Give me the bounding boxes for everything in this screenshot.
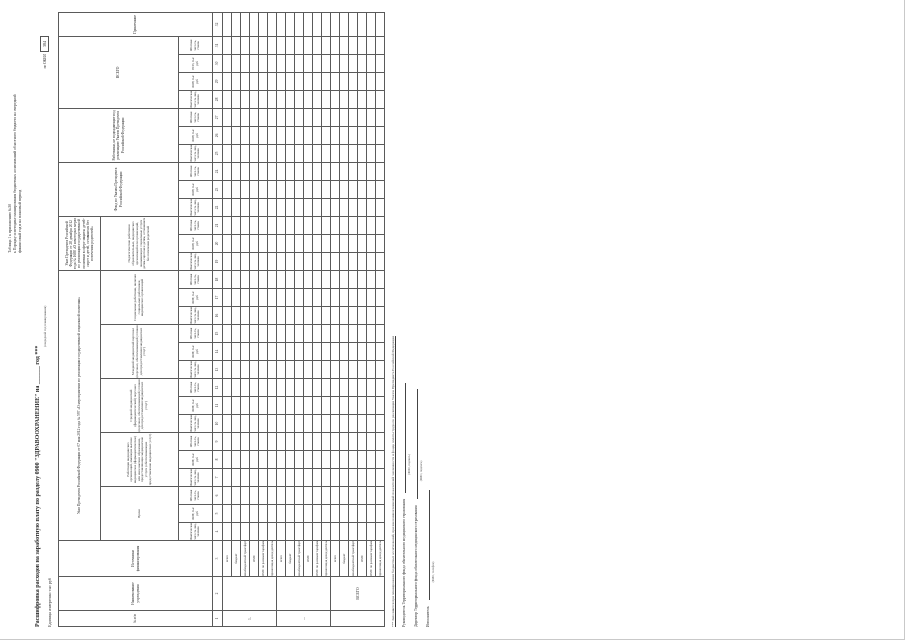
data-cell bbox=[295, 180, 304, 198]
data-cell bbox=[232, 289, 241, 307]
data-cell bbox=[268, 487, 277, 505]
data-cell bbox=[295, 397, 304, 415]
subcol-payroll-fund: ФОТ, тыс руб bbox=[179, 234, 213, 252]
data-cell bbox=[376, 379, 385, 397]
data-cell bbox=[313, 234, 322, 252]
data-cell bbox=[313, 126, 322, 144]
data-cell bbox=[241, 270, 250, 288]
data-cell bbox=[367, 36, 376, 54]
column-number: 25 bbox=[213, 144, 223, 162]
data-cell bbox=[232, 270, 241, 288]
data-cell bbox=[376, 487, 385, 505]
data-cell bbox=[358, 90, 367, 108]
table-row: ОМС по разовым тарифам bbox=[313, 12, 322, 626]
table-row: межбюджетный трансферт ТФОМС из обл bbox=[241, 12, 250, 626]
data-cell bbox=[268, 433, 277, 451]
data-cell bbox=[277, 126, 286, 144]
data-cell bbox=[322, 234, 331, 252]
data-cell bbox=[241, 343, 250, 361]
data-cell bbox=[331, 307, 340, 325]
data-cell bbox=[268, 325, 277, 343]
subcol-payroll-fund: ФОТ, тыс руб bbox=[179, 72, 213, 90]
data-cell bbox=[340, 144, 349, 162]
data-cell bbox=[259, 126, 268, 144]
data-cell bbox=[277, 108, 286, 126]
table-row: приносящая доход деятельность bbox=[268, 12, 277, 626]
data-cell bbox=[232, 54, 241, 72]
source-cell: бюджет bbox=[232, 541, 241, 577]
data-cell bbox=[313, 361, 322, 379]
data-cell bbox=[322, 469, 331, 487]
data-cell bbox=[241, 234, 250, 252]
data-cell bbox=[232, 216, 241, 234]
data-cell bbox=[241, 36, 250, 54]
data-cell bbox=[268, 180, 277, 198]
data-cell bbox=[349, 90, 358, 108]
data-cell bbox=[268, 216, 277, 234]
data-cell bbox=[223, 180, 232, 198]
data-cell bbox=[250, 12, 259, 36]
data-cell bbox=[313, 180, 322, 198]
data-cell bbox=[223, 12, 232, 36]
column-number: 28 bbox=[213, 90, 223, 108]
data-cell bbox=[295, 252, 304, 270]
data-cell bbox=[349, 289, 358, 307]
data-cell bbox=[241, 361, 250, 379]
data-cell bbox=[367, 198, 376, 216]
data-cell bbox=[331, 90, 340, 108]
data-cell bbox=[268, 397, 277, 415]
data-cell bbox=[367, 469, 376, 487]
subcol-actual-headcount: Фактическая числ-ть лиц, человек bbox=[179, 307, 213, 325]
data-cell bbox=[250, 162, 259, 180]
data-cell bbox=[232, 487, 241, 505]
data-cell bbox=[250, 90, 259, 108]
data-cell bbox=[322, 361, 331, 379]
data-cell bbox=[322, 289, 331, 307]
data-cell bbox=[322, 36, 331, 54]
data-cell bbox=[268, 523, 277, 541]
data-cell bbox=[268, 144, 277, 162]
data-cell bbox=[340, 361, 349, 379]
data-cell bbox=[223, 505, 232, 523]
source-cell: межбюджетный трансферт ТФОМС из обл bbox=[349, 541, 358, 577]
data-cell bbox=[322, 343, 331, 361]
data-cell bbox=[268, 451, 277, 469]
row-num-cell bbox=[331, 611, 385, 627]
data-cell bbox=[232, 162, 241, 180]
column-number: 32 bbox=[213, 12, 223, 36]
data-cell bbox=[286, 180, 295, 198]
data-cell bbox=[259, 343, 268, 361]
source-cell: всего bbox=[277, 541, 286, 577]
data-cell bbox=[295, 144, 304, 162]
subcol-actual-headcount: Фактическая числ-ть лиц, человек bbox=[179, 469, 213, 487]
data-cell bbox=[367, 54, 376, 72]
data-cell bbox=[277, 180, 286, 198]
data-cell bbox=[295, 198, 304, 216]
data-cell bbox=[232, 469, 241, 487]
data-cell bbox=[358, 144, 367, 162]
signature-label: Исполнитель bbox=[426, 606, 430, 627]
table-row: ОМС по разовым тарифам bbox=[259, 12, 268, 626]
data-cell bbox=[277, 487, 286, 505]
data-cell bbox=[277, 252, 286, 270]
data-cell bbox=[295, 451, 304, 469]
data-cell bbox=[349, 162, 358, 180]
category-header: Средний медицинский (фармацевтический) п… bbox=[101, 379, 179, 433]
data-cell bbox=[241, 12, 250, 36]
data-cell bbox=[367, 307, 376, 325]
data-cell bbox=[358, 433, 367, 451]
data-cell bbox=[340, 108, 349, 126]
data-cell bbox=[322, 415, 331, 433]
data-cell bbox=[241, 433, 250, 451]
data-cell bbox=[322, 72, 331, 90]
data-cell bbox=[340, 505, 349, 523]
column-number: 10 bbox=[213, 415, 223, 433]
data-cell bbox=[259, 433, 268, 451]
data-cell bbox=[277, 343, 286, 361]
data-cell bbox=[304, 523, 313, 541]
data-cell bbox=[277, 144, 286, 162]
data-cell bbox=[295, 415, 304, 433]
data-cell bbox=[367, 343, 376, 361]
data-cell bbox=[259, 451, 268, 469]
data-cell bbox=[241, 144, 250, 162]
column-number: 31 bbox=[213, 36, 223, 54]
data-cell bbox=[259, 108, 268, 126]
title-year-note: (очередной год планирования) bbox=[43, 306, 47, 347]
data-cell bbox=[313, 90, 322, 108]
data-cell bbox=[304, 469, 313, 487]
data-cell bbox=[340, 162, 349, 180]
data-cell bbox=[241, 252, 250, 270]
data-cell bbox=[241, 289, 250, 307]
data-cell bbox=[340, 487, 349, 505]
data-cell bbox=[376, 54, 385, 72]
data-cell bbox=[232, 361, 241, 379]
data-cell bbox=[376, 325, 385, 343]
data-cell bbox=[358, 325, 367, 343]
data-cell bbox=[223, 415, 232, 433]
column-number: 8 bbox=[213, 451, 223, 469]
data-cell bbox=[250, 397, 259, 415]
data-cell bbox=[286, 12, 295, 36]
data-cell bbox=[259, 270, 268, 288]
data-cell bbox=[331, 12, 340, 36]
data-cell bbox=[340, 234, 349, 252]
source-cell: всего bbox=[331, 541, 340, 577]
data-cell bbox=[376, 144, 385, 162]
data-cell bbox=[232, 433, 241, 451]
data-cell bbox=[268, 162, 277, 180]
footnote: *** Заполняется при планировании бюджетн… bbox=[391, 11, 395, 627]
data-cell bbox=[304, 487, 313, 505]
data-cell bbox=[340, 397, 349, 415]
data-cell bbox=[367, 180, 376, 198]
data-cell bbox=[349, 12, 358, 36]
data-cell bbox=[268, 289, 277, 307]
source-cell: приносящая доход деятельность bbox=[376, 541, 385, 577]
subcol-actual-headcount: Фактическая числ-ть лиц, человек bbox=[179, 523, 213, 541]
page-title: Расшифровка расходов на заработную плату… bbox=[35, 346, 41, 627]
data-cell bbox=[232, 108, 241, 126]
data-cell bbox=[340, 36, 349, 54]
data-cell bbox=[367, 379, 376, 397]
data-cell bbox=[376, 433, 385, 451]
data-cell bbox=[349, 469, 358, 487]
data-cell bbox=[331, 270, 340, 288]
data-cell bbox=[286, 198, 295, 216]
data-cell bbox=[295, 307, 304, 325]
subcol-actual-headcount: Фактическая числ-ть лиц, человек bbox=[179, 252, 213, 270]
data-cell bbox=[241, 216, 250, 234]
data-cell bbox=[313, 12, 322, 36]
data-cell bbox=[367, 126, 376, 144]
column-number: 15 bbox=[213, 325, 223, 343]
data-cell bbox=[232, 252, 241, 270]
data-cell bbox=[232, 451, 241, 469]
data-cell bbox=[376, 289, 385, 307]
data-cell bbox=[322, 162, 331, 180]
data-cell bbox=[376, 198, 385, 216]
data-cell bbox=[367, 487, 376, 505]
table-row: ОМС bbox=[304, 12, 313, 626]
data-cell bbox=[277, 12, 286, 36]
appendix-reference: Таблица 1 к приложению №30 к Порядку и м… bbox=[8, 38, 23, 253]
data-cell bbox=[340, 307, 349, 325]
data-cell bbox=[358, 307, 367, 325]
data-cell bbox=[232, 415, 241, 433]
data-cell bbox=[304, 126, 313, 144]
data-cell bbox=[313, 523, 322, 541]
source-cell: бюджет bbox=[340, 541, 349, 577]
data-cell bbox=[367, 12, 376, 36]
data-cell bbox=[358, 36, 367, 54]
data-cell bbox=[241, 198, 250, 216]
data-cell bbox=[349, 415, 358, 433]
group-header-total: ВСЕГО bbox=[59, 36, 179, 108]
data-cell bbox=[304, 54, 313, 72]
data-cell bbox=[277, 234, 286, 252]
col-header-note: Примечание bbox=[59, 12, 213, 36]
subcol-staff-positions: Штатная числ-ть, ставок bbox=[179, 162, 213, 180]
data-cell bbox=[286, 307, 295, 325]
data-cell bbox=[349, 343, 358, 361]
signature-blank: (ФИО, телефон) bbox=[426, 490, 430, 600]
data-cell bbox=[277, 451, 286, 469]
data-cell bbox=[340, 415, 349, 433]
data-cell bbox=[340, 126, 349, 144]
data-cell bbox=[232, 144, 241, 162]
data-cell bbox=[376, 36, 385, 54]
data-cell bbox=[295, 162, 304, 180]
data-cell bbox=[250, 36, 259, 54]
data-cell bbox=[331, 144, 340, 162]
data-cell bbox=[304, 307, 313, 325]
data-cell bbox=[268, 379, 277, 397]
data-cell bbox=[232, 325, 241, 343]
institution-name-cell bbox=[223, 577, 277, 611]
data-cell bbox=[340, 379, 349, 397]
data-cell bbox=[313, 72, 322, 90]
data-cell bbox=[322, 216, 331, 234]
column-number: 16 bbox=[213, 307, 223, 325]
data-cell bbox=[232, 505, 241, 523]
data-cell bbox=[331, 252, 340, 270]
subcol-staff-positions: Штатная числ-ть, ставок bbox=[179, 487, 213, 505]
data-cell bbox=[340, 451, 349, 469]
data-cell bbox=[304, 198, 313, 216]
source-cell: ОМС по разовым тарифам bbox=[313, 541, 322, 577]
data-cell bbox=[340, 289, 349, 307]
data-cell bbox=[286, 108, 295, 126]
data-cell bbox=[250, 469, 259, 487]
signature-blank: (ФИО, подпись) bbox=[414, 389, 418, 499]
data-cell bbox=[340, 270, 349, 288]
subcol-actual-headcount: Фактическая числ-ть лиц, человек bbox=[179, 361, 213, 379]
data-cell bbox=[259, 505, 268, 523]
data-cell bbox=[286, 361, 295, 379]
data-cell bbox=[322, 451, 331, 469]
column-number: 26 bbox=[213, 126, 223, 144]
data-cell bbox=[295, 108, 304, 126]
data-cell bbox=[223, 487, 232, 505]
data-cell bbox=[322, 198, 331, 216]
column-number: 12 bbox=[213, 379, 223, 397]
data-cell bbox=[331, 451, 340, 469]
data-cell bbox=[304, 162, 313, 180]
data-cell bbox=[232, 126, 241, 144]
data-cell bbox=[250, 72, 259, 90]
data-cell bbox=[304, 343, 313, 361]
data-cell bbox=[250, 126, 259, 144]
data-cell bbox=[223, 108, 232, 126]
data-cell bbox=[322, 180, 331, 198]
column-number: 11 bbox=[213, 397, 223, 415]
data-cell bbox=[223, 234, 232, 252]
data-cell bbox=[367, 361, 376, 379]
data-cell bbox=[331, 180, 340, 198]
data-cell bbox=[295, 36, 304, 54]
data-cell bbox=[376, 270, 385, 288]
data-cell bbox=[295, 379, 304, 397]
data-cell bbox=[286, 433, 295, 451]
data-cell bbox=[376, 505, 385, 523]
data-cell bbox=[331, 216, 340, 234]
data-cell bbox=[331, 234, 340, 252]
data-cell bbox=[376, 108, 385, 126]
data-cell bbox=[358, 72, 367, 90]
data-cell bbox=[304, 144, 313, 162]
data-cell bbox=[286, 325, 295, 343]
data-cell bbox=[268, 72, 277, 90]
data-cell bbox=[268, 343, 277, 361]
subcol-staff-positions: Штатная числ-ть, ставок bbox=[179, 270, 213, 288]
data-cell bbox=[295, 487, 304, 505]
subcol-staff-positions: Штатная числ-ть, ставок bbox=[179, 36, 213, 54]
data-cell bbox=[241, 523, 250, 541]
data-cell bbox=[313, 289, 322, 307]
subcol-staff-positions: Штатная числ-ть, ставок bbox=[179, 433, 213, 451]
document-page: Таблица 1 к приложению №30 к Порядку и м… bbox=[0, 0, 905, 640]
data-cell bbox=[268, 54, 277, 72]
data-cell bbox=[232, 180, 241, 198]
data-cell bbox=[322, 108, 331, 126]
data-cell bbox=[223, 36, 232, 54]
data-cell bbox=[277, 90, 286, 108]
data-cell bbox=[286, 451, 295, 469]
data-cell bbox=[286, 469, 295, 487]
subcol-payroll-fund: ФОТ, тыс руб bbox=[179, 505, 213, 523]
data-cell bbox=[376, 216, 385, 234]
table-row: бюджет bbox=[340, 12, 349, 626]
data-cell bbox=[358, 198, 367, 216]
data-cell bbox=[376, 90, 385, 108]
data-cell bbox=[322, 126, 331, 144]
data-cell bbox=[250, 180, 259, 198]
data-cell bbox=[241, 379, 250, 397]
subcol-staff-positions: Штатная числ-ть, ставок bbox=[179, 325, 213, 343]
column-number: 30 bbox=[213, 54, 223, 72]
data-cell bbox=[340, 198, 349, 216]
data-cell bbox=[250, 198, 259, 216]
data-cell bbox=[367, 108, 376, 126]
source-cell: ОМС по разовым тарифам bbox=[367, 541, 376, 577]
data-cell bbox=[349, 36, 358, 54]
data-cell bbox=[268, 36, 277, 54]
data-cell bbox=[376, 72, 385, 90]
data-cell bbox=[304, 180, 313, 198]
data-cell bbox=[223, 144, 232, 162]
column-number: 7 bbox=[213, 469, 223, 487]
signature-row: Директор Территориального фонда обязател… bbox=[414, 207, 418, 627]
data-cell bbox=[322, 144, 331, 162]
data-cell bbox=[268, 361, 277, 379]
data-cell bbox=[358, 487, 367, 505]
data-cell bbox=[304, 379, 313, 397]
data-cell bbox=[358, 270, 367, 288]
data-cell bbox=[322, 270, 331, 288]
data-cell bbox=[349, 505, 358, 523]
data-cell bbox=[223, 451, 232, 469]
header-row: № п/пНаименование учрежденияИсточники фи… bbox=[59, 12, 101, 626]
data-cell bbox=[313, 451, 322, 469]
column-number: 19 bbox=[213, 252, 223, 270]
data-cell bbox=[349, 198, 358, 216]
data-cell bbox=[286, 90, 295, 108]
data-cell bbox=[331, 162, 340, 180]
data-cell bbox=[331, 397, 340, 415]
signature-note: (ФИО, подпись) bbox=[407, 454, 411, 475]
data-cell bbox=[268, 252, 277, 270]
group-header-non-decree: Работники, не подпадающие под реализацию… bbox=[59, 108, 179, 162]
data-cell bbox=[358, 397, 367, 415]
data-cell bbox=[349, 487, 358, 505]
data-cell bbox=[223, 523, 232, 541]
data-cell bbox=[286, 397, 295, 415]
data-cell bbox=[376, 397, 385, 415]
data-cell bbox=[259, 487, 268, 505]
data-cell bbox=[223, 469, 232, 487]
data-cell bbox=[250, 505, 259, 523]
data-cell bbox=[313, 487, 322, 505]
data-cell bbox=[358, 126, 367, 144]
okei-value-box: 384 bbox=[40, 36, 49, 52]
data-cell bbox=[259, 90, 268, 108]
data-cell bbox=[349, 54, 358, 72]
